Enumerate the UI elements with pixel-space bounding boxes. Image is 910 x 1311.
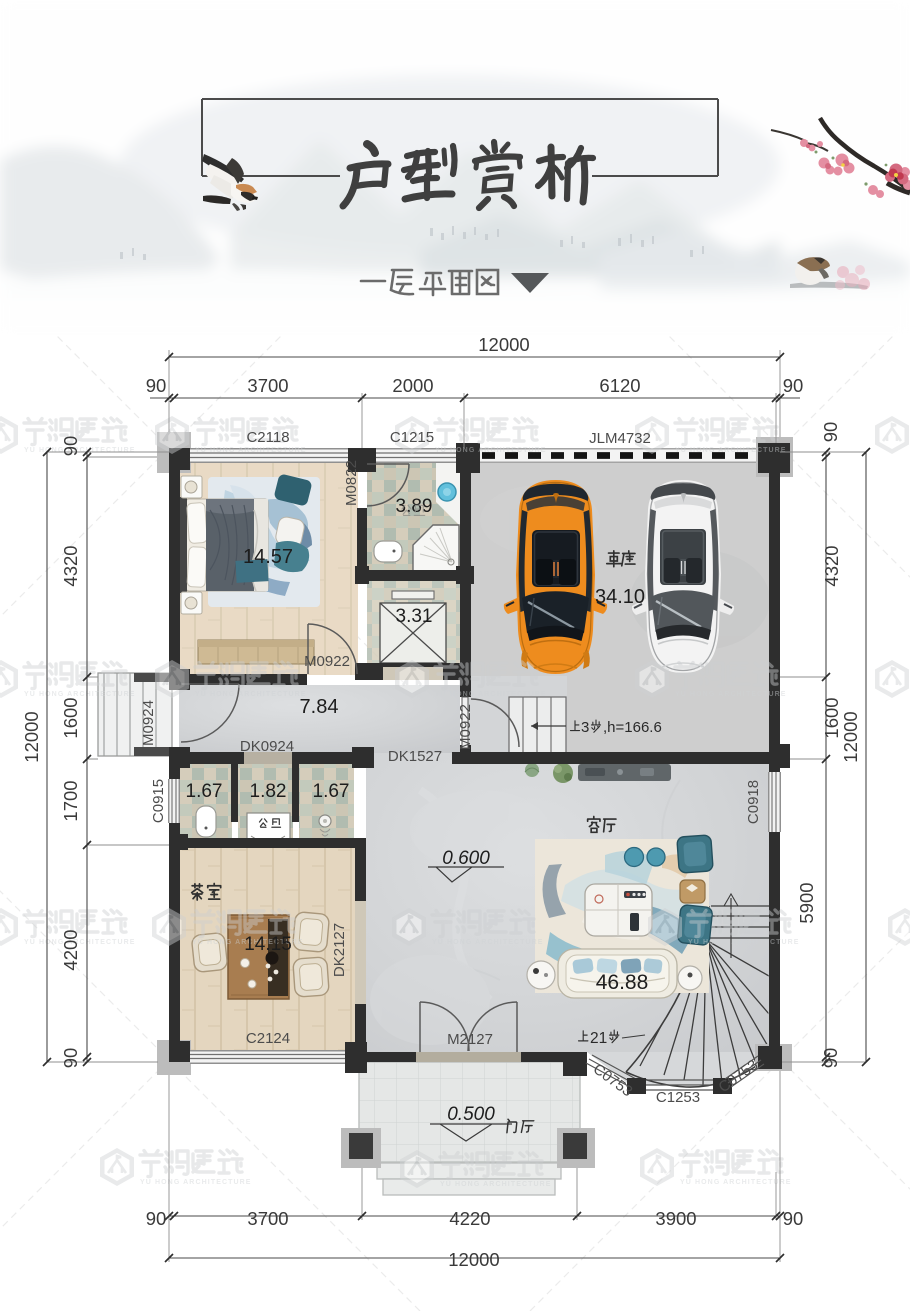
- svg-text:C0918: C0918: [745, 780, 762, 824]
- svg-text:1.67: 1.67: [313, 781, 350, 802]
- svg-text:C1215: C1215: [390, 429, 434, 446]
- svg-text:14.15: 14.15: [244, 934, 292, 955]
- svg-text:34.10: 34.10: [595, 586, 645, 608]
- svg-text:1600: 1600: [821, 697, 842, 738]
- svg-text:1.82: 1.82: [250, 781, 287, 802]
- svg-text:4320: 4320: [821, 545, 842, 586]
- svg-text:2000: 2000: [392, 375, 433, 396]
- svg-text:DK1527: DK1527: [388, 748, 442, 765]
- svg-text:1700: 1700: [60, 780, 81, 821]
- svg-text:90: 90: [60, 436, 81, 457]
- svg-text:M0924: M0924: [140, 700, 157, 746]
- svg-text:JLM4732: JLM4732: [589, 430, 651, 447]
- svg-text:C2124: C2124: [246, 1030, 290, 1047]
- svg-text:7.84: 7.84: [300, 696, 339, 718]
- svg-text:4320: 4320: [60, 545, 81, 586]
- svg-text:M2127: M2127: [447, 1031, 493, 1048]
- svg-text:M0922: M0922: [457, 704, 474, 750]
- svg-text:12000: 12000: [478, 334, 529, 355]
- svg-text:3700: 3700: [247, 1208, 288, 1229]
- svg-text:90: 90: [146, 1208, 167, 1229]
- svg-text:4200: 4200: [60, 929, 81, 970]
- svg-text:6120: 6120: [599, 375, 640, 396]
- svg-text:5900: 5900: [796, 882, 817, 923]
- svg-text:90: 90: [60, 1048, 81, 1069]
- svg-text:3900: 3900: [655, 1208, 696, 1229]
- svg-text:46.88: 46.88: [596, 971, 649, 994]
- svg-text:C0915: C0915: [150, 779, 167, 823]
- svg-text:3: 3: [581, 719, 589, 736]
- svg-text:1600: 1600: [60, 697, 81, 738]
- svg-text:12000: 12000: [21, 711, 42, 762]
- svg-text:4220: 4220: [449, 1208, 490, 1229]
- svg-text:90: 90: [820, 422, 841, 443]
- svg-text:3700: 3700: [247, 375, 288, 396]
- svg-text:14.57: 14.57: [243, 546, 293, 568]
- svg-text:21: 21: [590, 1030, 607, 1047]
- svg-text:,h=166.6: ,h=166.6: [603, 719, 662, 736]
- svg-text:12000: 12000: [448, 1249, 499, 1270]
- svg-text:C2118: C2118: [246, 429, 289, 446]
- svg-text:90: 90: [783, 375, 804, 396]
- svg-text:90: 90: [146, 375, 167, 396]
- svg-text:1.67: 1.67: [186, 781, 223, 802]
- svg-text:0.500: 0.500: [447, 1104, 495, 1125]
- svg-text:0.600: 0.600: [442, 848, 490, 869]
- svg-text:12000: 12000: [840, 711, 861, 762]
- svg-text:90: 90: [820, 1048, 841, 1069]
- svg-text:3.31: 3.31: [396, 606, 433, 627]
- svg-text:90: 90: [783, 1208, 804, 1229]
- svg-text:M0822: M0822: [343, 460, 360, 506]
- svg-text:M0922: M0922: [304, 653, 350, 670]
- svg-text:DK0924: DK0924: [240, 738, 294, 755]
- svg-text:C1253: C1253: [656, 1089, 700, 1106]
- svg-text:DK2127: DK2127: [331, 923, 348, 977]
- svg-text:3.89: 3.89: [396, 496, 433, 517]
